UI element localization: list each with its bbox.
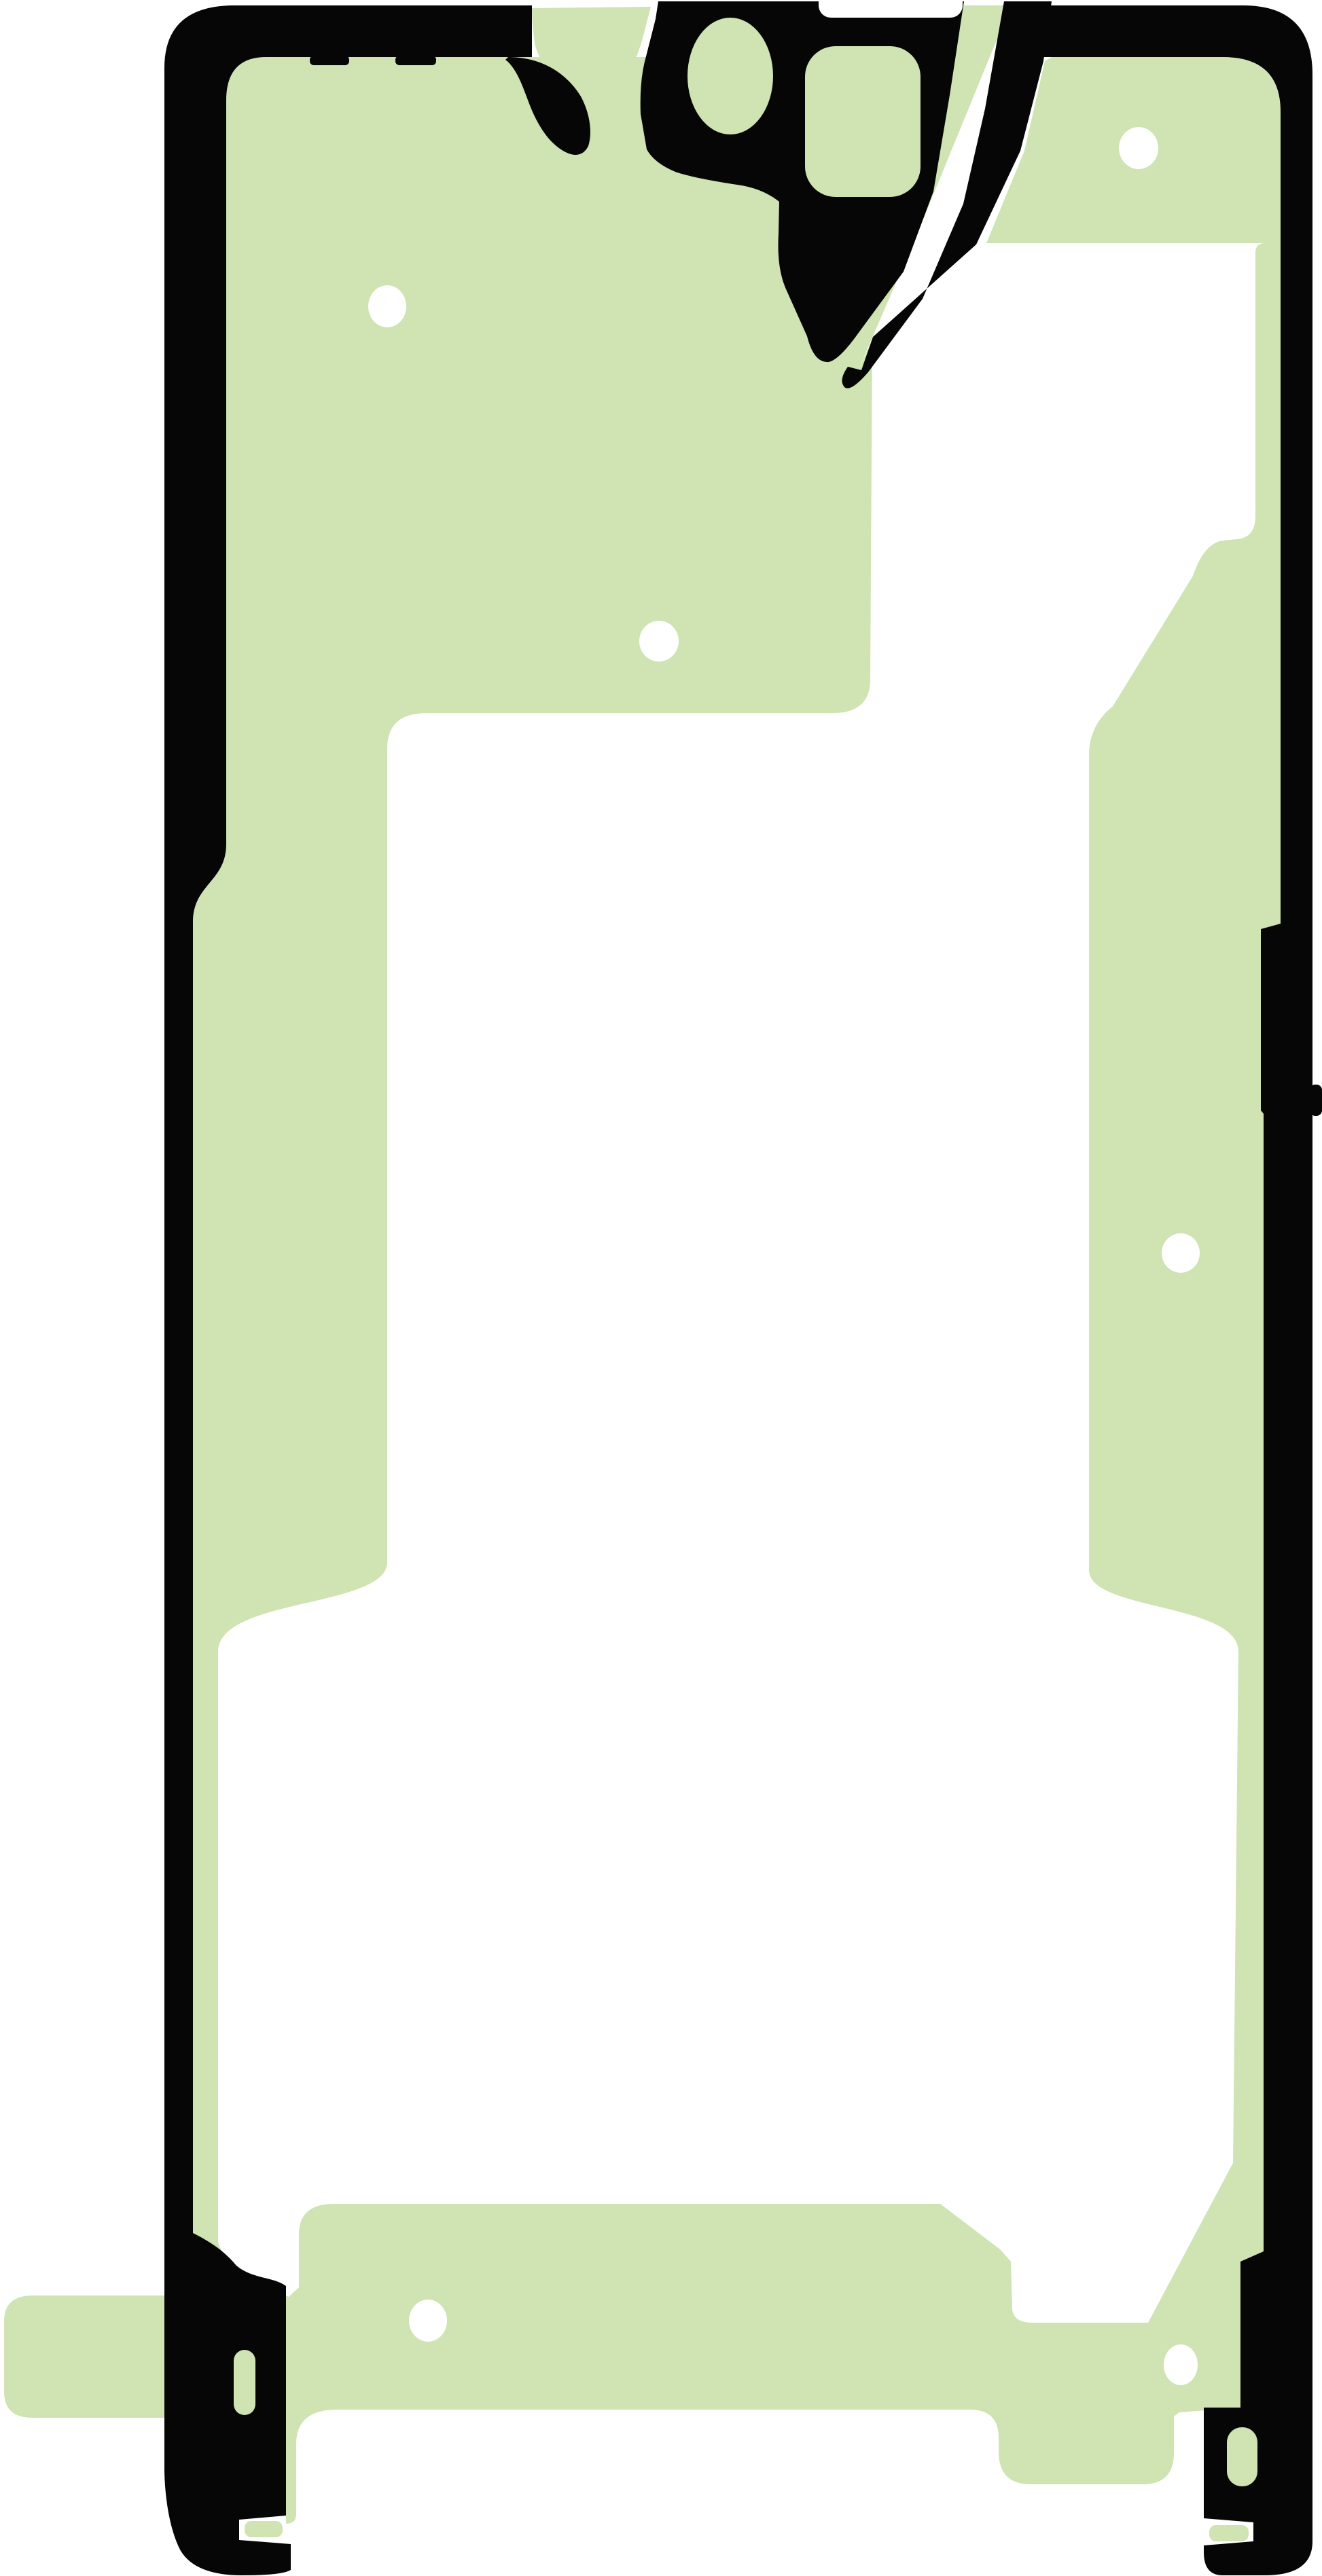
alignment-hole-6 (1164, 2344, 1198, 2385)
left-bar-slot (234, 2350, 255, 2415)
product-image-stage (0, 0, 1322, 2576)
sensor-cutout (805, 46, 921, 197)
alignment-hole-1 (368, 285, 406, 327)
right-bar-slot (1227, 2427, 1257, 2486)
adhesive-film-main (193, 5, 1281, 2524)
pull-tab (4, 2296, 164, 2418)
alignment-hole-4 (1162, 1233, 1200, 1273)
top-edge-notch (819, 0, 963, 18)
alignment-hole-3 (639, 621, 679, 661)
top-edge-tooth-2 (395, 56, 436, 65)
left-foot-tongue (245, 2521, 283, 2537)
right-foot-tongue (1209, 2525, 1249, 2541)
top-edge-tooth-1 (310, 56, 349, 65)
alignment-hole-5 (409, 2300, 447, 2342)
alignment-hole-2 (1119, 127, 1158, 169)
adhesive-sticker-illustration (0, 0, 1322, 2576)
front-camera-hole (687, 18, 773, 134)
outline-right-bar (1204, 2408, 1312, 2575)
outline-right-nub (1310, 1085, 1322, 1116)
